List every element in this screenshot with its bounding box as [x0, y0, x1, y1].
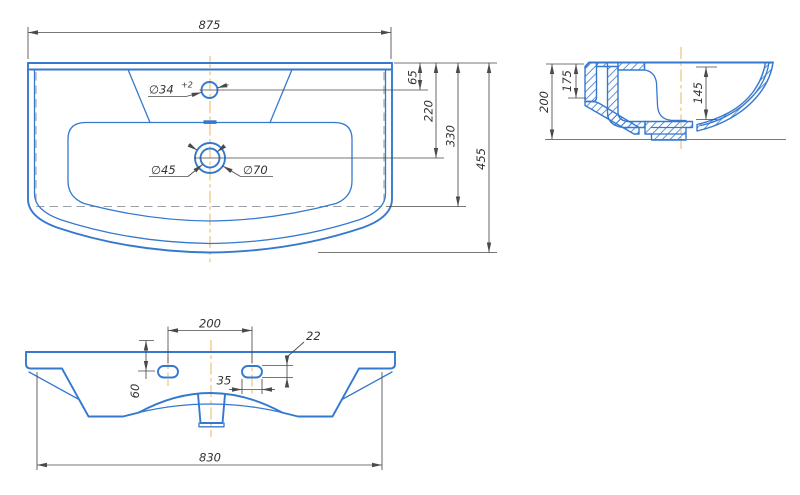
dim-slot-spacing-label: 200 — [199, 317, 221, 331]
dim-bowl-depth: 145 — [691, 67, 717, 120]
dim-cabinet-depth-label: 330 — [444, 125, 458, 147]
back-wall-section — [585, 63, 597, 102]
drain-boss-section — [645, 122, 693, 141]
basin-interior-profile — [645, 63, 687, 121]
dim-slot-drop-label: 60 — [128, 384, 142, 399]
front-wall-section — [697, 63, 773, 132]
faucet-hole-tolerance-label: +2 — [181, 81, 193, 90]
side-section-view: 200 175 145 — [537, 47, 786, 149]
dim-body-width-label: 830 — [199, 451, 221, 465]
dim-slot-length-label: 35 — [217, 374, 232, 388]
front-view: 200 60 22 35 830 — [26, 317, 395, 471]
top-view: 875 65 220 330 455 ∅34 +2 ∅45 — [28, 18, 497, 262]
dim-total-depth-label: 455 — [474, 148, 488, 170]
dim-overall-width: 875 — [28, 18, 391, 59]
dim-overall-width-label: 875 — [199, 18, 221, 32]
faucet-hole-diameter-label: ∅34 — [149, 83, 174, 97]
dim-back-wall-height-label: 175 — [560, 70, 574, 92]
dim-bowl-depth-label: 145 — [691, 82, 705, 104]
dim-slot-spacing: 200 — [168, 317, 252, 364]
drawing-page: 875 65 220 330 455 ∅34 +2 ∅45 — [0, 0, 800, 495]
deck-section-right — [618, 63, 645, 71]
dim-side-height-label: 200 — [537, 91, 551, 113]
drain-outer-diameter-label: ∅70 — [243, 163, 268, 177]
front-right-profile — [282, 352, 395, 417]
overflow-slot-mark — [204, 120, 217, 124]
dim-body-width: 830 — [37, 372, 382, 470]
drain-inner-diameter-label: ∅45 — [151, 163, 176, 177]
dim-slot-drop: 60 — [128, 341, 155, 399]
technical-drawing-canvas: 875 65 220 330 455 ∅34 +2 ∅45 — [0, 0, 800, 495]
front-left-profile — [26, 352, 139, 417]
dim-slot-height-label: 22 — [306, 329, 321, 343]
dim-slot-height: 22 — [262, 329, 321, 387]
dim-faucet-offset-label: 65 — [406, 70, 420, 85]
dim-back-wall-height: 175 — [560, 64, 586, 98]
dim-drain-offset-label: 220 — [422, 100, 436, 122]
